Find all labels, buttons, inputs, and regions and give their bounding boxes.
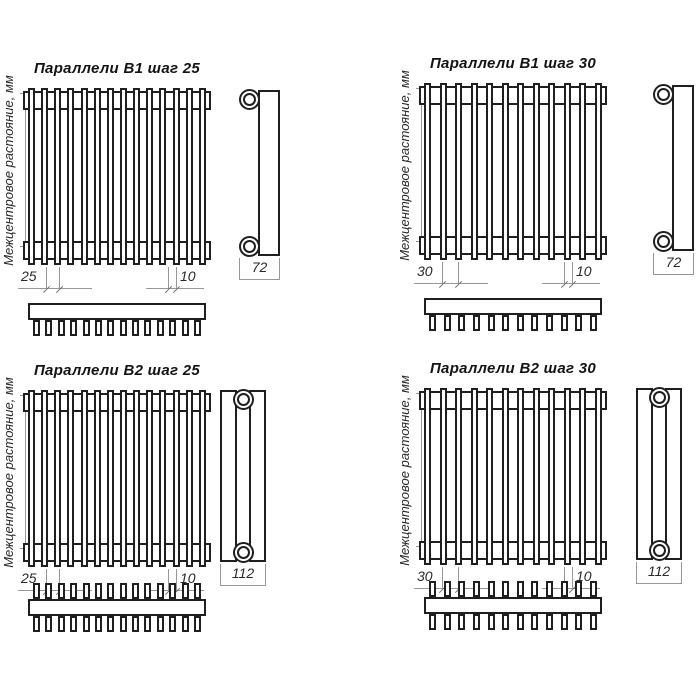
top-view-collector [424,597,602,614]
tooth-shape [182,583,189,599]
tooth-shape [33,320,40,336]
tube-width-value: 10 [180,268,196,284]
axis-distance-label: Межцентровое растояние, мм [1,68,16,273]
tooth-shape [132,616,139,632]
tube-shape [120,390,127,567]
top-view-tubes-front-row [424,614,602,630]
tooth-shape [70,616,77,632]
front-view [424,83,602,260]
tooth-shape [83,320,90,336]
side-view: 112 [220,390,266,562]
tooth-shape [95,583,102,599]
tooth-shape [561,614,568,630]
tooth-shape [45,616,52,632]
tube-shape [486,83,493,260]
tooth-shape [70,583,77,599]
tooth-shape [58,616,65,632]
tooth-shape [58,583,65,599]
tube-shape [440,388,447,565]
top-view-collector [424,298,602,315]
tooth-shape [458,614,465,630]
pitch-dimension: 30 [414,262,488,284]
side-profile [258,90,280,256]
tooth-shape [575,614,582,630]
side-view: 112 [636,388,682,560]
tube-shape [28,88,35,265]
tube-shape [173,88,180,265]
diagram-b2-step30: Параллели В2 шаг 30 Межцентровое растоян… [396,355,700,667]
tube-array [424,83,602,260]
tooth-shape [429,315,436,331]
tooth-shape [517,315,524,331]
tooth-shape [444,581,451,597]
dimension-line [239,279,280,280]
tube-shape [159,88,166,265]
tooth-shape [575,315,582,331]
tube-shape [120,88,127,265]
tube-shape [595,388,602,565]
tooth-shape [120,616,127,632]
tube-shape [173,390,180,567]
dimension-line [421,393,422,547]
diagram-b1-step30: Параллели В1 шаг 30 Межцентровое растоян… [396,50,700,362]
side-profile-back-row [665,388,682,560]
tube-shape [107,390,114,567]
tooth-shape [488,614,495,630]
tube-shape [471,83,478,260]
tooth-shape [546,315,553,331]
vertical-dimension: Межцентровое растояние, мм [412,393,422,547]
tooth-shape [144,320,151,336]
tube-shape [199,390,206,567]
tube-array [28,88,206,265]
dimension-line [653,274,694,275]
diagram-b1-step25: Параллели В1 шаг 25 Межцентровое растоян… [0,55,350,367]
tube-shape [533,83,540,260]
tooth-shape [45,320,52,336]
front-view [424,388,602,565]
diagram-title: Параллели В2 шаг 30 [424,360,602,378]
depth-value: 72 [653,254,694,270]
tube-width-value: 10 [576,263,592,279]
tube-shape [455,83,462,260]
tooth-shape [546,614,553,630]
dimension-line [18,288,92,289]
dimension-line [421,88,422,242]
tube-array [424,388,602,565]
top-view [424,581,602,630]
tube-shape [502,388,509,565]
side-profile-front-row [220,390,237,562]
tooth-shape [473,315,480,331]
tooth-shape [590,315,597,331]
extension-line [564,262,565,284]
axis-distance-label: Межцентровое растояние, мм [1,370,16,575]
tooth-shape [590,581,597,597]
tube-shape [564,83,571,260]
top-view-tubes-back-row [28,583,206,599]
tube-shape [94,390,101,567]
pitch-value: 30 [417,263,433,279]
top-view-tubes [28,320,206,336]
tooth-shape [531,315,538,331]
pipe-port-bottom-icon [653,231,674,252]
tube-shape [186,390,193,567]
vertical-dimension: Межцентровое растояние, мм [412,88,422,242]
tooth-shape [58,320,65,336]
tube-shape [533,388,540,565]
diagram-title: Параллели В2 шаг 25 [28,362,206,380]
depth-dimension: 112 [636,562,682,584]
top-view [28,583,206,632]
tube-shape [67,390,74,567]
tube-shape [81,88,88,265]
axis-distance-label: Межцентровое растояние, мм [397,63,412,268]
dimension-line [25,93,26,247]
depth-dimension: 72 [653,253,694,275]
tube-shape [486,388,493,565]
side-profile-back-row [249,390,266,562]
tube-shape [67,88,74,265]
extension-line [168,267,169,289]
extension-line [442,262,443,284]
tooth-shape [45,583,52,599]
tube-shape [133,88,140,265]
tooth-shape [107,320,114,336]
tooth-shape [182,320,189,336]
tube-shape [548,83,555,260]
tooth-shape [169,320,176,336]
pipe-port-top-icon [239,89,260,110]
dimension-line [636,583,682,584]
pipe-port-top-icon [233,389,254,410]
dimension-line [25,395,26,549]
depth-value: 112 [636,563,682,579]
tooth-shape [144,583,151,599]
tooth-shape [194,616,201,632]
tube-array [28,390,206,567]
extension-line [458,262,459,284]
top-view-tubes-front-row [28,616,206,632]
pipe-port-bottom-icon [649,540,670,561]
tube-shape [28,390,35,567]
front-view [28,88,206,265]
tooth-shape [458,315,465,331]
tooth-shape [531,614,538,630]
tube-shape [41,390,48,567]
tube-shape [579,83,586,260]
tube-shape [517,83,524,260]
tooth-shape [194,583,201,599]
tooth-shape [95,320,102,336]
tooth-shape [531,581,538,597]
tube-shape [548,388,555,565]
tube-shape [186,88,193,265]
depth-dimension: 112 [220,564,266,586]
tube-shape [440,83,447,260]
side-view: 72 [239,90,280,256]
tooth-shape [473,581,480,597]
dimension-line [220,585,266,586]
tube-shape [159,390,166,567]
tooth-shape [444,315,451,331]
tooth-shape [120,320,127,336]
extension-line [572,262,573,284]
tube-shape [471,388,478,565]
tooth-shape [70,320,77,336]
tooth-shape [502,581,509,597]
front-view [28,390,206,567]
dimension-line [414,283,488,284]
side-profile [672,85,694,251]
tooth-shape [561,581,568,597]
tube-shape [595,83,602,260]
tooth-shape [590,614,597,630]
tube-shape [81,390,88,567]
vertical-dimension: Межцентровое растояние, мм [16,93,26,247]
tooth-shape [83,583,90,599]
tooth-shape [488,315,495,331]
tooth-shape [517,614,524,630]
tooth-shape [132,583,139,599]
tooth-shape [429,581,436,597]
top-view-tubes-back-row [424,581,602,597]
depth-value: 72 [239,259,280,275]
tooth-shape [575,581,582,597]
top-view-collector [28,599,206,616]
tooth-shape [83,616,90,632]
extension-line [176,267,177,289]
tooth-shape [458,581,465,597]
tooth-shape [194,320,201,336]
tube-shape [107,88,114,265]
tube-shape [424,83,431,260]
pipe-port-top-icon [649,387,670,408]
tooth-shape [182,616,189,632]
tooth-shape [33,583,40,599]
pipe-port-bottom-icon [233,542,254,563]
tube-shape [146,390,153,567]
tooth-shape [502,614,509,630]
extension-line [59,267,60,289]
tube-width-dimension: 10 [542,262,600,284]
tube-shape [199,88,206,265]
diagram-title: Параллели В1 шаг 25 [28,60,206,78]
diagram-b2-step25: Параллели В2 шаг 25 Межцентровое растоян… [0,357,350,669]
tube-shape [502,83,509,260]
tube-shape [41,88,48,265]
top-view-tubes [424,315,602,331]
tooth-shape [120,583,127,599]
tube-shape [579,388,586,565]
tooth-shape [144,616,151,632]
tooth-shape [546,581,553,597]
side-profile-front-row [636,388,653,560]
tooth-shape [169,583,176,599]
tube-shape [94,88,101,265]
top-view [424,298,602,331]
tube-shape [133,390,140,567]
extension-line [46,267,47,289]
tube-shape [424,388,431,565]
tooth-shape [429,614,436,630]
tooth-shape [157,320,164,336]
axis-distance-label: Межцентровое растояние, мм [397,368,412,573]
top-view-collector [28,303,206,320]
tooth-shape [95,616,102,632]
tube-shape [146,88,153,265]
pitch-dimension: 25 [18,267,92,289]
pipe-port-top-icon [653,84,674,105]
tooth-shape [502,315,509,331]
tooth-shape [517,581,524,597]
technical-drawing-canvas: { "drawing": { "axis_label": "Межцентров… [0,0,700,700]
vertical-dimension: Межцентровое растояние, мм [16,395,26,549]
tube-shape [455,388,462,565]
tooth-shape [157,583,164,599]
depth-value: 112 [220,565,266,581]
tooth-shape [488,581,495,597]
tooth-shape [33,616,40,632]
tooth-shape [169,616,176,632]
tooth-shape [561,315,568,331]
pipe-port-bottom-icon [239,236,260,257]
tube-width-dimension: 10 [146,267,204,289]
top-view [28,303,206,336]
diagram-title: Параллели В1 шаг 30 [424,55,602,73]
pitch-value: 25 [21,268,37,284]
tube-shape [517,388,524,565]
tube-shape [54,88,61,265]
tooth-shape [473,614,480,630]
tooth-shape [107,583,114,599]
tube-shape [564,388,571,565]
side-view: 72 [653,85,694,251]
depth-dimension: 72 [239,258,280,280]
tube-shape [54,390,61,567]
tooth-shape [107,616,114,632]
tooth-shape [157,616,164,632]
tooth-shape [132,320,139,336]
tooth-shape [444,614,451,630]
